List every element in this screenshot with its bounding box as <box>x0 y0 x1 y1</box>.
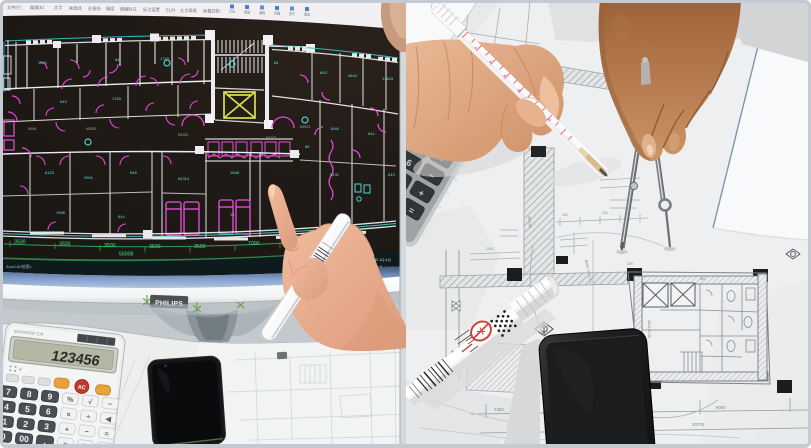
svg-text:84: 84 <box>274 60 279 65</box>
svg-text:14: 14 <box>230 212 235 217</box>
svg-text:画直线: 画直线 <box>69 5 82 12</box>
svg-text:00: 00 <box>19 433 30 444</box>
svg-text:2000: 2000 <box>486 247 494 251</box>
svg-text:3500: 3500 <box>104 243 116 249</box>
svg-text:200: 200 <box>627 262 633 266</box>
svg-text:1648: 1648 <box>230 170 240 175</box>
svg-text:200: 200 <box>602 211 608 215</box>
svg-text:WC: WC <box>700 277 706 281</box>
svg-text:文字: 文字 <box>54 4 62 11</box>
svg-text:ELIN: ELIN <box>166 8 175 13</box>
svg-text:M1521: M1521 <box>178 133 189 137</box>
svg-text:643: 643 <box>60 99 67 104</box>
svg-text:450: 450 <box>562 213 568 217</box>
svg-text:M091: M091 <box>28 127 37 131</box>
svg-text:编辑(E): 编辑(E) <box>30 4 45 11</box>
svg-text:3500: 3500 <box>59 242 71 248</box>
svg-text:隔编标注: 隔编标注 <box>120 6 138 13</box>
svg-text:14843: 14843 <box>382 76 394 81</box>
svg-text:1998: 1998 <box>56 210 66 215</box>
svg-text:文件(F): 文件(F) <box>7 4 21 11</box>
svg-text:30700: 30700 <box>692 422 705 427</box>
svg-text:1743: 1743 <box>160 56 170 61</box>
svg-text:任意线: 任意线 <box>88 5 101 12</box>
svg-text:1763: 1763 <box>112 96 122 101</box>
svg-text:84: 84 <box>115 57 120 62</box>
svg-text:编组: 编组 <box>106 5 114 12</box>
svg-text:1643: 1643 <box>38 60 48 65</box>
svg-text:AutoCAD绘图1:: AutoCAD绘图1: <box>6 264 33 269</box>
svg-text:=: = <box>104 431 109 438</box>
svg-text:644: 644 <box>118 214 125 219</box>
svg-text:打印: 打印 <box>229 9 235 14</box>
svg-text:3500: 3500 <box>149 244 161 250</box>
svg-text:关于: 关于 <box>289 11 296 16</box>
svg-text:AC: AC <box>77 385 86 392</box>
svg-text:648: 648 <box>130 170 137 175</box>
svg-text:3400: 3400 <box>494 407 504 412</box>
svg-text:4643: 4643 <box>348 73 358 78</box>
svg-text:7000: 7000 <box>248 241 260 247</box>
svg-text:644: 644 <box>368 131 375 136</box>
svg-text:84314: 84314 <box>178 176 190 181</box>
svg-text:+: + <box>64 426 69 433</box>
svg-text:86: 86 <box>305 144 310 149</box>
svg-text:M0921: M0921 <box>300 125 311 129</box>
svg-text:56008: 56008 <box>119 252 134 258</box>
svg-text:3500: 3500 <box>194 244 206 250</box>
svg-text:−: − <box>84 429 89 436</box>
svg-text:643: 643 <box>388 172 395 177</box>
svg-text:1848.02.00: 1848.02.00 <box>647 320 651 338</box>
svg-text:6432: 6432 <box>330 172 340 177</box>
svg-text:帮助: 帮助 <box>244 10 250 15</box>
svg-text:问题: 问题 <box>274 11 281 16</box>
svg-text:643: 643 <box>320 70 327 75</box>
svg-text:0901: 0901 <box>84 175 94 180</box>
svg-text:M1521: M1521 <box>266 136 277 140</box>
svg-text:文字表格: 文字表格 <box>180 7 198 14</box>
svg-text:屏幕控制: 屏幕控制 <box>203 8 220 15</box>
svg-text:−: − <box>108 401 113 408</box>
svg-text:1648: 1648 <box>330 126 340 131</box>
svg-text:退出: 退出 <box>304 12 310 17</box>
svg-text:面板: 面板 <box>259 10 266 15</box>
svg-text:6123: 6123 <box>45 170 55 175</box>
svg-text:M0521: M0521 <box>86 127 97 131</box>
svg-text:×: × <box>66 411 71 418</box>
svg-text:标注设置: 标注设置 <box>143 6 160 13</box>
svg-text:9000: 9000 <box>716 405 726 410</box>
svg-text:3500: 3500 <box>14 240 26 246</box>
